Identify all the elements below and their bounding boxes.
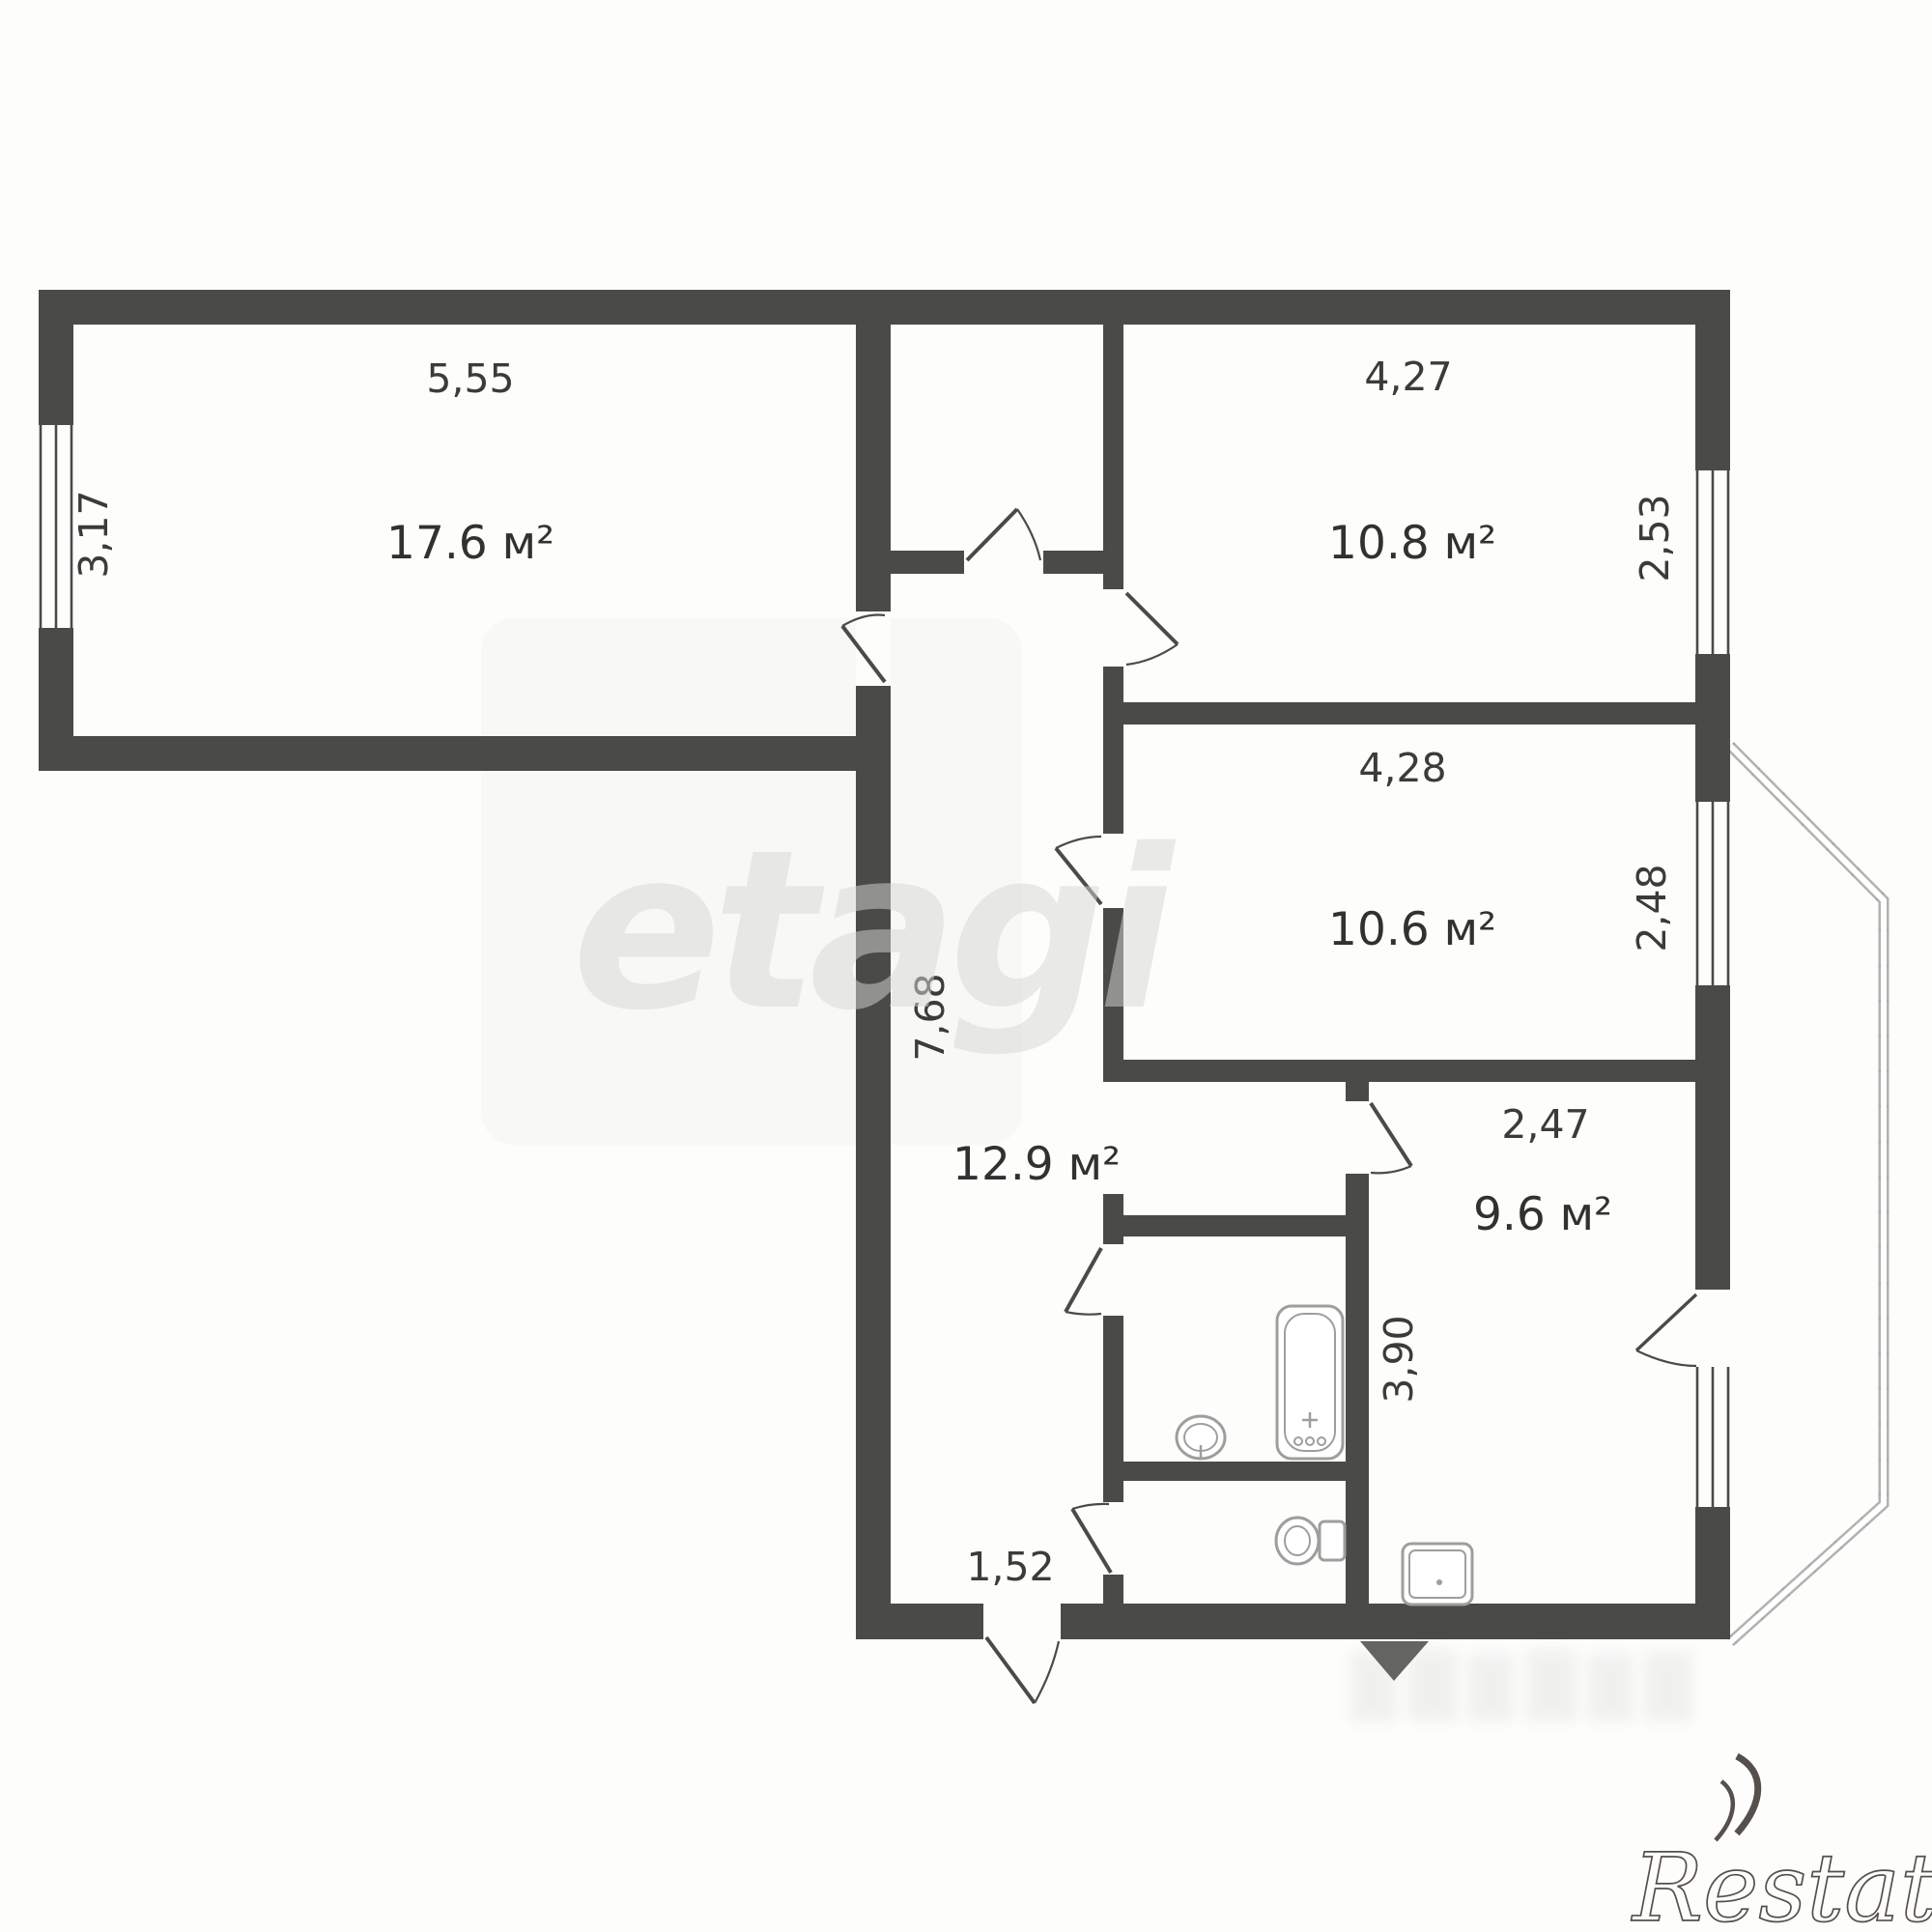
- wall-livingroom-bottom: [39, 736, 891, 771]
- living-width-label: 5,55: [426, 355, 514, 402]
- kitchen-height-label: 3,90: [1376, 1315, 1422, 1403]
- kitchen-sink-icon: [1403, 1544, 1472, 1605]
- floor-plan-page: 5,55 3,17 17.6 м² 4,27 10.8 м² 2,53 4,28…: [0, 0, 1932, 1932]
- wall-bathroom-wc-divider: [1103, 1462, 1369, 1481]
- bedroom-top-width-label: 4,27: [1364, 354, 1452, 400]
- living-height-label: 3,17: [71, 490, 117, 578]
- opening-entry-door: [983, 1604, 1061, 1639]
- etagi-watermark: etagi: [572, 802, 1177, 1059]
- restate-logo-text: Restate: [1631, 1833, 1932, 1932]
- bedroom-top-height-label: 2,53: [1632, 494, 1678, 582]
- bedroom-mid-width-label: 4,28: [1358, 745, 1446, 791]
- wash-basin-icon: [1177, 1416, 1225, 1459]
- kitchen-width-label: 2,47: [1501, 1101, 1589, 1148]
- opening-door-bedroom-top: [1103, 589, 1123, 667]
- wall-outer-top: [39, 290, 1730, 325]
- bedroom-mid-area-label: 10.6 м²: [1328, 903, 1496, 956]
- wall-jamb-stub: [1103, 1194, 1123, 1215]
- wall-bathroom-top: [1103, 1215, 1346, 1236]
- kitchen-area-label: 9.6 м²: [1473, 1188, 1612, 1241]
- living-area-label: 17.6 м²: [386, 517, 554, 570]
- floor-plan-drawing: 5,55 3,17 17.6 м² 4,27 10.8 м² 2,53 4,28…: [0, 0, 1932, 1932]
- hallway-area-label: 12.9 м²: [952, 1138, 1121, 1191]
- entry-door-width-label: 1,52: [966, 1544, 1054, 1590]
- wall-bedrooms-divider: [1103, 702, 1730, 724]
- opening-door-bathroom: [1103, 1244, 1123, 1316]
- bedroom-top-area-label: 10.8 м²: [1328, 517, 1496, 570]
- opening-door-kitchen: [1346, 1101, 1369, 1174]
- bathtub-icon: [1277, 1306, 1343, 1459]
- wall-bedroom-mid-bottom: [1103, 1060, 1730, 1082]
- toilet-icon: [1276, 1518, 1345, 1564]
- opening-door-closet: [964, 551, 1043, 574]
- bedroom-mid-height-label: 2,48: [1629, 864, 1675, 952]
